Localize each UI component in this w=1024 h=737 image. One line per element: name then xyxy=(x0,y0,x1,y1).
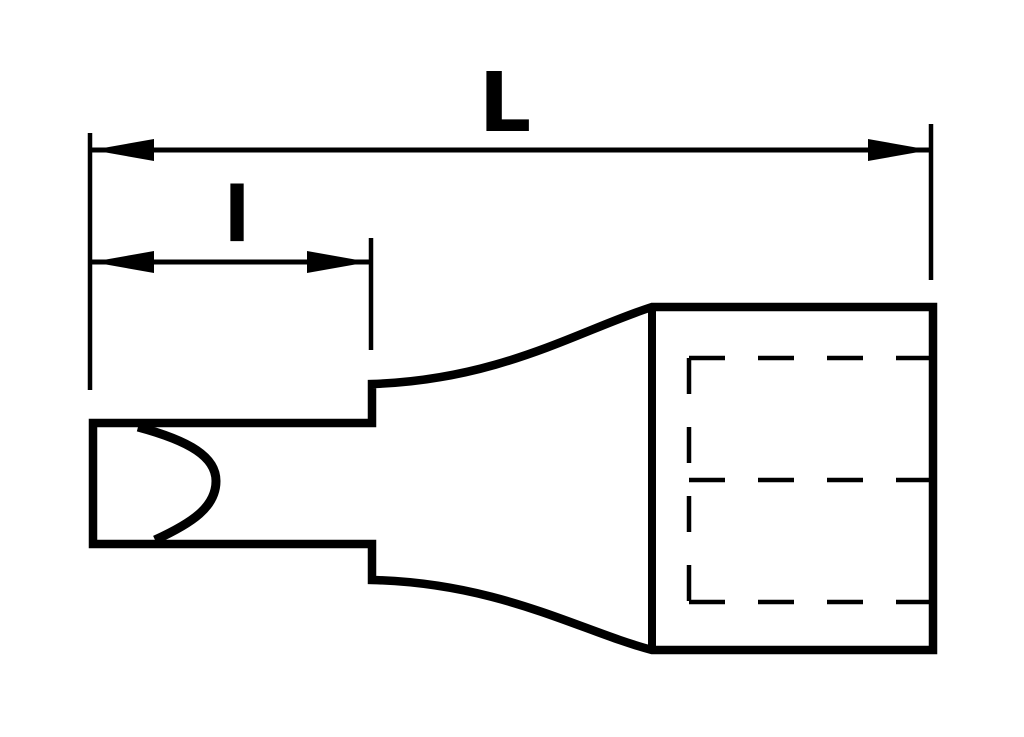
arrowhead-tip-right xyxy=(307,251,369,273)
arrowhead-overall-right xyxy=(868,139,930,161)
hidden-square-drive-group xyxy=(689,358,931,602)
blade-tip-grind-curve xyxy=(138,427,216,540)
arrowhead-overall-left xyxy=(92,139,154,161)
dimension-overall-length-group: L xyxy=(91,56,931,161)
part-silhouette-group xyxy=(93,307,933,650)
technical-drawing-figure: L l xyxy=(0,0,1024,737)
dimension-label-tip: l xyxy=(224,170,250,259)
extension-lines-group xyxy=(90,124,931,390)
slotted-bit-socket-drawing: L l xyxy=(0,0,1024,737)
dimension-label-overall: L xyxy=(479,56,531,151)
dimension-tip-length-group: l xyxy=(91,170,370,273)
arrowhead-tip-left xyxy=(92,251,154,273)
